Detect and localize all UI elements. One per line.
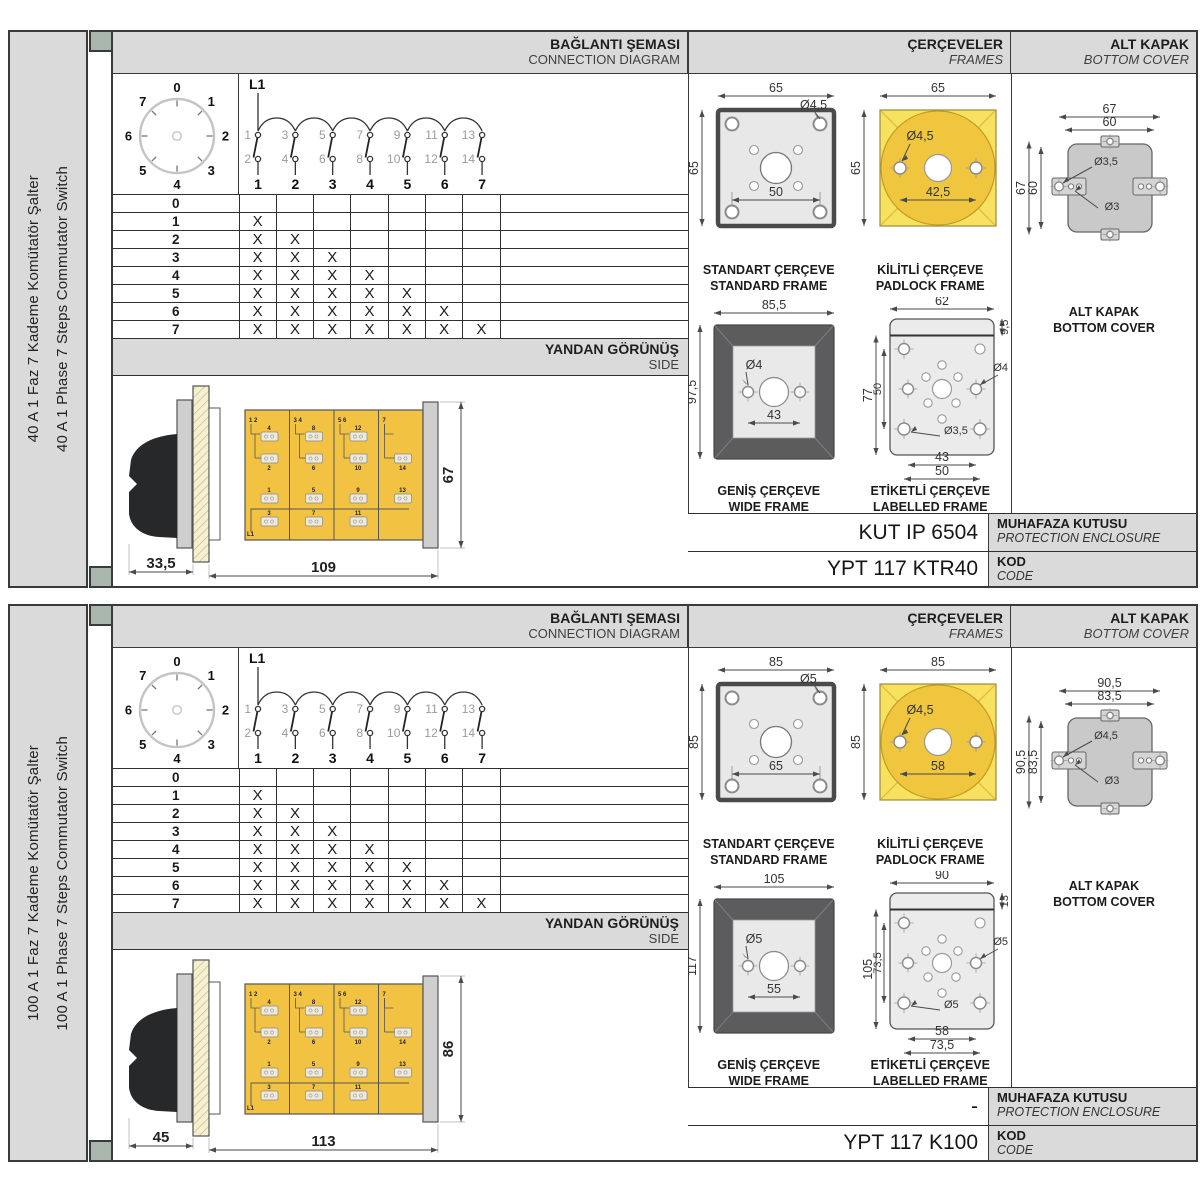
- wide-frame-label: GENİŞ ÇERÇEVE WIDE FRAME: [717, 1057, 820, 1090]
- svg-text:45: 45: [153, 1129, 170, 1146]
- svg-text:4: 4: [173, 751, 181, 766]
- section-main: BAĞLANTI ŞEMASI CONNECTION DIAGRAM ÇERÇE…: [111, 30, 1198, 588]
- svg-text:5 6: 5 6: [338, 992, 347, 998]
- labelled-frame-label-tr: ETİKETLİ ÇERÇEVE: [871, 483, 990, 499]
- svg-text:Ø4,5: Ø4,5: [906, 129, 933, 143]
- svg-text:6: 6: [441, 750, 449, 766]
- wide-frame-label-tr: GENİŞ ÇERÇEVE: [717, 1057, 820, 1073]
- wide-frame-drawing: 85,597,5Ø443: [688, 297, 849, 483]
- product-code-value: YPT 117 K100: [688, 1125, 988, 1160]
- svg-text:Ø3,5: Ø3,5: [1094, 156, 1118, 168]
- table-row: 1X: [113, 787, 688, 805]
- svg-text:11: 11: [355, 511, 362, 517]
- svg-text:43: 43: [767, 408, 781, 422]
- svg-text:105: 105: [764, 872, 785, 886]
- svg-text:L1: L1: [247, 532, 255, 538]
- table-row: 5XXXXX: [113, 859, 688, 877]
- padlock-frame-cell: 8585Ø4,558 KİLİTLİ ÇERÇEVE PADLOCK FRAME: [850, 648, 1012, 869]
- product-section: 40 A 1 Faz 7 Kademe Komütatör Şalter 40 …: [8, 30, 1198, 588]
- svg-text:5: 5: [319, 702, 326, 716]
- svg-text:3: 3: [208, 737, 215, 752]
- svg-text:60: 60: [1026, 181, 1040, 195]
- code-label-en: CODE: [997, 1143, 1196, 1157]
- code-label-tr: KOD: [997, 1128, 1196, 1143]
- code-label-tr: KOD: [997, 554, 1196, 569]
- svg-text:1: 1: [208, 94, 215, 109]
- bottom-cover-header-tr: ALT KAPAK: [1011, 610, 1189, 626]
- rotary-dial-drawing: 01234567: [113, 74, 238, 194]
- svg-text:11: 11: [355, 1085, 362, 1091]
- bottom-cover-label: ALT KAPAK BOTTOM COVER: [1053, 878, 1155, 911]
- labelled-frame-cell: 629,577504350Ø4Ø3,5 ETİKETLİ ÇERÇEVE LAB…: [850, 295, 1012, 516]
- table-row: 4XXXX: [113, 841, 688, 859]
- spine-tab-bottom: [89, 1140, 113, 1162]
- table-row: 2XX: [113, 805, 688, 823]
- svg-text:85: 85: [688, 735, 701, 749]
- svg-text:65: 65: [769, 759, 783, 773]
- side-band-en: SIDE: [113, 357, 679, 372]
- svg-text:85: 85: [769, 655, 783, 669]
- frames-header-en: FRAMES: [688, 52, 1003, 67]
- labelled-frame-label: ETİKETLİ ÇERÇEVE LABELLED FRAME: [871, 1057, 990, 1090]
- frames-header-tr: ÇERÇEVELER: [688, 36, 1003, 52]
- svg-text:65: 65: [769, 81, 783, 95]
- side-view-drawing: 1 242133 486575 6121091171413L133,510967: [113, 376, 688, 586]
- labelled-frame-drawing: 629,577504350Ø4Ø3,5: [850, 297, 1011, 483]
- wide-frame-drawing: 105117Ø555: [688, 871, 849, 1057]
- product-title-tr: 40 A 1 Faz 7 Kademe Komütatör Şalter: [25, 175, 42, 442]
- svg-text:73,5: 73,5: [872, 952, 884, 973]
- table-row: 7XXXXXXX: [113, 895, 688, 913]
- svg-text:3: 3: [208, 163, 215, 178]
- connection-diagram-header: BAĞLANTI ŞEMASI CONNECTION DIAGRAM: [113, 32, 688, 74]
- padlock-frame-label: KİLİTLİ ÇERÇEVE PADLOCK FRAME: [876, 836, 985, 869]
- svg-text:109: 109: [311, 559, 336, 576]
- svg-text:5: 5: [319, 128, 326, 142]
- svg-text:97,5: 97,5: [688, 379, 699, 403]
- svg-text:11: 11: [425, 702, 438, 716]
- svg-text:Ø3,5: Ø3,5: [944, 425, 968, 437]
- svg-text:5: 5: [404, 750, 412, 766]
- frames-panel: 85Ø58565 STANDART ÇERÇEVE STANDARD FRAME…: [688, 648, 1011, 1087]
- bottom-cover-label-tr: ALT KAPAK: [1053, 878, 1155, 894]
- svg-text:5: 5: [404, 176, 412, 192]
- table-row: 6XXXXXX: [113, 303, 688, 321]
- connection-header-tr: BAĞLANTI ŞEMASI: [113, 36, 680, 52]
- bottom-cover-header: ALT KAPAK BOTTOM COVER: [1011, 32, 1196, 74]
- side-view-band: YANDAN GÖRÜNÜŞ SIDE: [113, 338, 688, 376]
- enclosure-label-en: PROTECTION ENCLOSURE: [997, 531, 1196, 545]
- step-contact-table: 01X2XX3XXX4XXXX5XXXXX6XXXXXX7XXXXXXX: [113, 768, 688, 912]
- step-contact-table: 01X2XX3XXX4XXXX5XXXXX6XXXXXX7XXXXXXX: [113, 194, 688, 338]
- product-code-label: KOD CODE: [988, 551, 1196, 586]
- standard-frame-cell: 85Ø58565 STANDART ÇERÇEVE STANDARD FRAME: [688, 648, 850, 869]
- svg-text:Ø5: Ø5: [746, 932, 763, 946]
- connection-header-en: CONNECTION DIAGRAM: [113, 626, 680, 641]
- svg-text:Ø3: Ø3: [1104, 201, 1119, 213]
- standard-frame-label-en: STANDARD FRAME: [703, 278, 835, 294]
- svg-text:13: 13: [462, 128, 476, 142]
- svg-text:13: 13: [462, 702, 476, 716]
- svg-text:9,5: 9,5: [999, 319, 1011, 334]
- svg-text:12: 12: [424, 152, 438, 166]
- section-main: BAĞLANTI ŞEMASI CONNECTION DIAGRAM ÇERÇE…: [111, 604, 1198, 1162]
- wide-frame-label-tr: GENİŞ ÇERÇEVE: [717, 483, 820, 499]
- svg-text:4: 4: [282, 152, 289, 166]
- svg-text:50: 50: [769, 185, 783, 199]
- svg-text:2: 2: [244, 152, 251, 166]
- svg-text:10: 10: [387, 152, 401, 166]
- frames-header-tr: ÇERÇEVELER: [688, 610, 1003, 626]
- labelled-frame-drawing: 901310573,55873,5Ø5Ø5: [850, 871, 1011, 1057]
- svg-text:11: 11: [425, 128, 438, 142]
- enclosure-code-value: -: [688, 1087, 988, 1125]
- svg-text:55: 55: [767, 982, 781, 996]
- svg-text:4: 4: [173, 177, 181, 192]
- bottom-cover-header-en: BOTTOM COVER: [1011, 626, 1189, 641]
- labelled-frame-label: ETİKETLİ ÇERÇEVE LABELLED FRAME: [871, 483, 990, 516]
- wide-frame-cell: 85,597,5Ø443 GENİŞ ÇERÇEVE WIDE FRAME: [688, 295, 850, 516]
- padlock-frame-drawing: 6565Ø4,542,5: [850, 76, 1011, 262]
- spine-tab-top: [89, 604, 113, 626]
- svg-text:Ø3: Ø3: [1104, 775, 1119, 787]
- svg-text:14: 14: [399, 1040, 406, 1046]
- svg-text:3: 3: [329, 750, 337, 766]
- standard-frame-label-tr: STANDART ÇERÇEVE: [703, 262, 835, 278]
- svg-text:7: 7: [139, 668, 146, 683]
- svg-text:83,5: 83,5: [1097, 689, 1121, 703]
- product-section: 100 A 1 Faz 7 Kademe Komütatör Şalter 10…: [8, 604, 1198, 1162]
- table-row: 0: [113, 195, 688, 213]
- circuit-diagram-cell: L112134256378491051112613147: [239, 74, 688, 194]
- svg-text:13: 13: [399, 1062, 406, 1068]
- svg-text:Ø4: Ø4: [993, 362, 1008, 374]
- svg-text:42,5: 42,5: [926, 185, 950, 199]
- rotary-dial-cell: 01234567: [113, 74, 239, 194]
- padlock-frame-label: KİLİTLİ ÇERÇEVE PADLOCK FRAME: [876, 262, 985, 295]
- svg-text:2: 2: [291, 176, 299, 192]
- padlock-frame-label-en: PADLOCK FRAME: [876, 278, 985, 294]
- padlock-frame-drawing: 8585Ø4,558: [850, 650, 1011, 836]
- padlock-frame-cell: 6565Ø4,542,5 KİLİTLİ ÇERÇEVE PADLOCK FRA…: [850, 74, 1012, 295]
- svg-text:12: 12: [355, 426, 362, 432]
- product-code-label: KOD CODE: [988, 1125, 1196, 1160]
- bottom-cover-label-en: BOTTOM COVER: [1053, 320, 1155, 336]
- svg-text:2: 2: [222, 129, 229, 144]
- standard-frame-label-tr: STANDART ÇERÇEVE: [703, 836, 835, 852]
- standard-frame-drawing: 65Ø4,56550: [688, 76, 849, 262]
- side-band-tr: YANDAN GÖRÜNÜŞ: [113, 915, 679, 931]
- svg-text:2: 2: [222, 703, 229, 718]
- product-sidebar: 100 A 1 Faz 7 Kademe Komütatör Şalter 10…: [8, 604, 88, 1162]
- bottom-cover-panel: 67606760Ø3,5Ø3 ALT KAPAK BOTTOM COVER: [1011, 74, 1196, 513]
- rotary-dial-cell: 01234567: [113, 648, 239, 768]
- product-title-tr: 100 A 1 Faz 7 Kademe Komütatör Şalter: [25, 745, 42, 1021]
- svg-text:1: 1: [254, 176, 262, 192]
- standard-frame-cell: 65Ø4,56550 STANDART ÇERÇEVE STANDARD FRA…: [688, 74, 850, 295]
- svg-text:14: 14: [462, 152, 476, 166]
- bottom-cover-label: ALT KAPAK BOTTOM COVER: [1053, 304, 1155, 337]
- svg-text:12: 12: [424, 726, 438, 740]
- svg-text:9: 9: [394, 702, 401, 716]
- svg-text:Ø4: Ø4: [746, 358, 763, 372]
- svg-text:Ø4,5: Ø4,5: [1094, 730, 1118, 742]
- svg-text:10: 10: [355, 1040, 362, 1046]
- svg-text:6: 6: [441, 176, 449, 192]
- side-view-band: YANDAN GÖRÜNÜŞ SIDE: [113, 912, 688, 950]
- svg-text:L1: L1: [249, 650, 266, 666]
- svg-text:3: 3: [282, 128, 289, 142]
- side-view-drawing: 1 242133 486575 6121091171413L14511386: [113, 950, 688, 1160]
- frames-panel: 65Ø4,56550 STANDART ÇERÇEVE STANDARD FRA…: [688, 74, 1011, 513]
- svg-text:50: 50: [872, 382, 884, 394]
- svg-text:9: 9: [394, 128, 401, 142]
- svg-text:Ø5: Ø5: [944, 999, 959, 1011]
- padlock-frame-label-en: PADLOCK FRAME: [876, 852, 985, 868]
- svg-text:3: 3: [329, 176, 337, 192]
- svg-text:14: 14: [399, 466, 406, 472]
- frames-header-en: FRAMES: [688, 626, 1003, 641]
- bottom-cover-header-tr: ALT KAPAK: [1011, 36, 1189, 52]
- svg-text:3 4: 3 4: [294, 418, 303, 424]
- svg-text:Ø5: Ø5: [993, 936, 1008, 948]
- circuit-diagram-drawing: L112134256378491051112613147: [239, 648, 688, 768]
- svg-text:14: 14: [462, 726, 476, 740]
- connection-diagram-header: BAĞLANTI ŞEMASI CONNECTION DIAGRAM: [113, 606, 688, 648]
- bottom-cover-header: ALT KAPAK BOTTOM COVER: [1011, 606, 1196, 648]
- bottom-cover-label-tr: ALT KAPAK: [1053, 304, 1155, 320]
- product-title-en: 40 A 1 Phase 7 Steps Commutator Switch: [54, 166, 71, 452]
- table-row: 3XXX: [113, 249, 688, 267]
- standard-frame-drawing: 85Ø58565: [688, 650, 849, 836]
- bottom-cover-label-en: BOTTOM COVER: [1053, 894, 1155, 910]
- svg-text:1 2: 1 2: [249, 418, 258, 424]
- svg-text:13: 13: [399, 488, 406, 494]
- padlock-frame-label-tr: KİLİTLİ ÇERÇEVE: [876, 262, 985, 278]
- frames-header: ÇERÇEVELER FRAMES: [688, 606, 1011, 648]
- svg-text:3 4: 3 4: [294, 992, 303, 998]
- svg-text:1: 1: [244, 128, 251, 142]
- svg-text:43: 43: [935, 450, 949, 464]
- svg-text:85,5: 85,5: [762, 298, 786, 312]
- standard-frame-label: STANDART ÇERÇEVE STANDARD FRAME: [703, 836, 835, 869]
- svg-text:6: 6: [125, 129, 132, 144]
- svg-text:5: 5: [139, 737, 146, 752]
- svg-text:4: 4: [282, 726, 289, 740]
- svg-text:73,5: 73,5: [930, 1038, 954, 1052]
- standard-frame-label: STANDART ÇERÇEVE STANDARD FRAME: [703, 262, 835, 295]
- rotary-dial-drawing: 01234567: [113, 648, 238, 768]
- product-sidebar: 40 A 1 Faz 7 Kademe Komütatör Şalter 40 …: [8, 30, 88, 588]
- svg-text:113: 113: [311, 1133, 335, 1150]
- spine-tab-bottom: [89, 566, 113, 588]
- svg-text:1: 1: [244, 702, 251, 716]
- svg-text:8: 8: [356, 152, 363, 166]
- enclosure-label-tr: MUHAFAZA KUTUSU: [997, 1090, 1196, 1105]
- table-row: 4XXXX: [113, 267, 688, 285]
- svg-text:50: 50: [935, 464, 949, 478]
- svg-text:8: 8: [356, 726, 363, 740]
- product-code-value: YPT 117 KTR40: [688, 551, 988, 586]
- svg-text:1: 1: [208, 668, 215, 683]
- svg-text:65: 65: [688, 161, 701, 175]
- connection-header-tr: BAĞLANTI ŞEMASI: [113, 610, 680, 626]
- table-row: 0: [113, 769, 688, 787]
- svg-text:3: 3: [282, 702, 289, 716]
- svg-text:83,5: 83,5: [1026, 750, 1040, 774]
- labelled-frame-label-tr: ETİKETLİ ÇERÇEVE: [871, 1057, 990, 1073]
- table-row: 3XXX: [113, 823, 688, 841]
- table-row: 1X: [113, 213, 688, 231]
- svg-text:7: 7: [356, 128, 363, 142]
- enclosure-label-en: PROTECTION ENCLOSURE: [997, 1105, 1196, 1119]
- connection-header-en: CONNECTION DIAGRAM: [113, 52, 680, 67]
- table-row: 2XX: [113, 231, 688, 249]
- svg-text:6: 6: [125, 703, 132, 718]
- svg-text:65: 65: [931, 81, 945, 95]
- enclosure-code-label: MUHAFAZA KUTUSU PROTECTION ENCLOSURE: [988, 1087, 1196, 1125]
- svg-text:7: 7: [139, 94, 146, 109]
- svg-text:5: 5: [139, 163, 146, 178]
- svg-text:10: 10: [387, 726, 401, 740]
- svg-text:85: 85: [931, 655, 945, 669]
- bottom-cover-header-en: BOTTOM COVER: [1011, 52, 1189, 67]
- svg-text:12: 12: [355, 1000, 362, 1006]
- svg-text:0: 0: [173, 654, 180, 669]
- svg-text:1 2: 1 2: [249, 992, 258, 998]
- svg-text:7: 7: [478, 176, 486, 192]
- svg-text:4: 4: [366, 750, 374, 766]
- table-row: 5XXXXX: [113, 285, 688, 303]
- enclosure-code-label: MUHAFAZA KUTUSU PROTECTION ENCLOSURE: [988, 513, 1196, 551]
- svg-text:60: 60: [1102, 115, 1116, 129]
- spine-tab-top: [89, 30, 113, 52]
- svg-text:13: 13: [999, 895, 1011, 907]
- svg-text:58: 58: [935, 1024, 949, 1038]
- svg-text:65: 65: [850, 161, 863, 175]
- svg-text:86: 86: [440, 1041, 457, 1058]
- wide-frame-cell: 105117Ø555 GENİŞ ÇERÇEVE WIDE FRAME: [688, 869, 850, 1090]
- side-band-tr: YANDAN GÖRÜNÜŞ: [113, 341, 679, 357]
- product-title-en: 100 A 1 Phase 7 Steps Commutator Switch: [54, 736, 71, 1031]
- svg-text:2: 2: [291, 750, 299, 766]
- svg-text:7: 7: [356, 702, 363, 716]
- svg-text:67: 67: [440, 467, 457, 484]
- svg-text:85: 85: [850, 735, 863, 749]
- table-row: 7XXXXXXX: [113, 321, 688, 339]
- svg-text:58: 58: [931, 759, 945, 773]
- svg-text:62: 62: [935, 297, 949, 308]
- svg-text:Ø5: Ø5: [800, 672, 817, 686]
- code-label-en: CODE: [997, 569, 1196, 583]
- bottom-cover-drawing: 67606760Ø3,5Ø3: [1012, 104, 1197, 304]
- bottom-cover-panel: 90,583,590,583,5Ø4,5Ø3 ALT KAPAK BOTTOM …: [1011, 648, 1196, 1087]
- padlock-frame-label-tr: KİLİTLİ ÇERÇEVE: [876, 836, 985, 852]
- svg-text:L1: L1: [247, 1106, 255, 1112]
- enclosure-code-value: KUT IP 6504: [688, 513, 988, 551]
- circuit-diagram-drawing: L112134256378491051112613147: [239, 74, 688, 194]
- circuit-diagram-cell: L112134256378491051112613147: [239, 648, 688, 768]
- svg-text:6: 6: [319, 726, 326, 740]
- bottom-cover-drawing: 90,583,590,583,5Ø4,5Ø3: [1012, 678, 1197, 878]
- frames-header: ÇERÇEVELER FRAMES: [688, 32, 1011, 74]
- svg-text:Ø4,5: Ø4,5: [800, 98, 827, 112]
- catalog-page: 40 A 1 Faz 7 Kademe Komütatör Şalter 40 …: [0, 0, 1200, 1200]
- svg-text:7: 7: [478, 750, 486, 766]
- svg-text:33,5: 33,5: [146, 555, 175, 572]
- svg-text:10: 10: [355, 466, 362, 472]
- svg-text:117: 117: [688, 955, 699, 975]
- svg-text:Ø4,5: Ø4,5: [906, 703, 933, 717]
- svg-text:90: 90: [935, 871, 949, 882]
- svg-text:0: 0: [173, 80, 180, 95]
- side-band-en: SIDE: [113, 931, 679, 946]
- svg-text:2: 2: [244, 726, 251, 740]
- labelled-frame-cell: 901310573,55873,5Ø5Ø5 ETİKETLİ ÇERÇEVE L…: [850, 869, 1012, 1090]
- svg-text:6: 6: [319, 152, 326, 166]
- enclosure-label-tr: MUHAFAZA KUTUSU: [997, 516, 1196, 531]
- wide-frame-label: GENİŞ ÇERÇEVE WIDE FRAME: [717, 483, 820, 516]
- standard-frame-label-en: STANDARD FRAME: [703, 852, 835, 868]
- table-row: 6XXXXXX: [113, 877, 688, 895]
- svg-text:5 6: 5 6: [338, 418, 347, 424]
- svg-text:L1: L1: [249, 76, 266, 92]
- svg-text:4: 4: [366, 176, 374, 192]
- svg-text:1: 1: [254, 750, 262, 766]
